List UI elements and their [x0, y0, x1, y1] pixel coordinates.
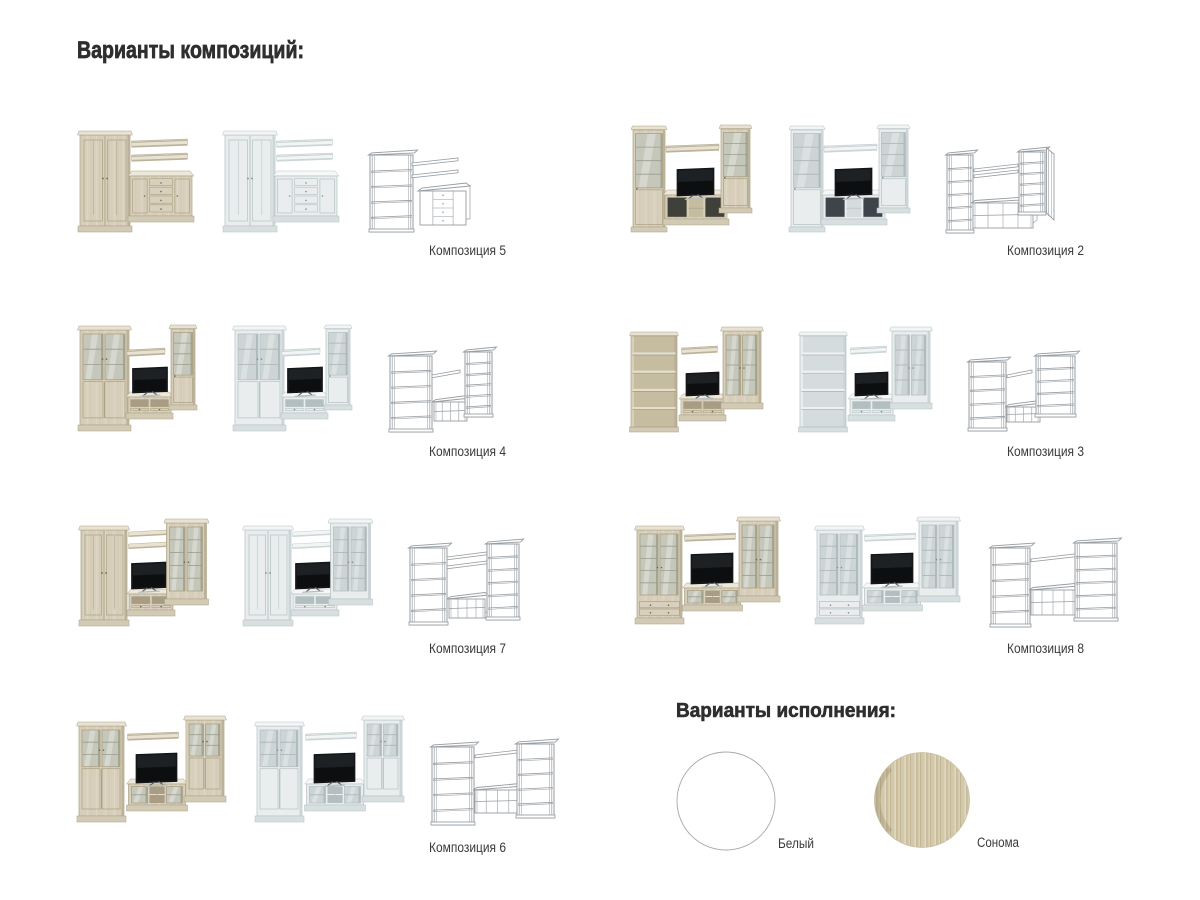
svg-text:Композиция 2: Композиция 2 [1007, 243, 1084, 258]
svg-text:Композиция 8: Композиция 8 [1007, 641, 1084, 656]
svg-text:Варианты композиций:: Варианты композиций: [77, 37, 304, 64]
svg-text:Белый: Белый [778, 836, 814, 851]
svg-text:Композиция 6: Композиция 6 [429, 840, 506, 855]
svg-text:Композиция 7: Композиция 7 [429, 641, 506, 656]
svg-text:Композиция 3: Композиция 3 [1007, 444, 1084, 459]
svg-text:Композиция 5: Композиция 5 [429, 243, 506, 258]
svg-text:Сонома: Сонома [977, 835, 1019, 850]
svg-text:Композиция 4: Композиция 4 [429, 444, 506, 459]
svg-text:Варианты исполнения:: Варианты исполнения: [676, 700, 896, 722]
